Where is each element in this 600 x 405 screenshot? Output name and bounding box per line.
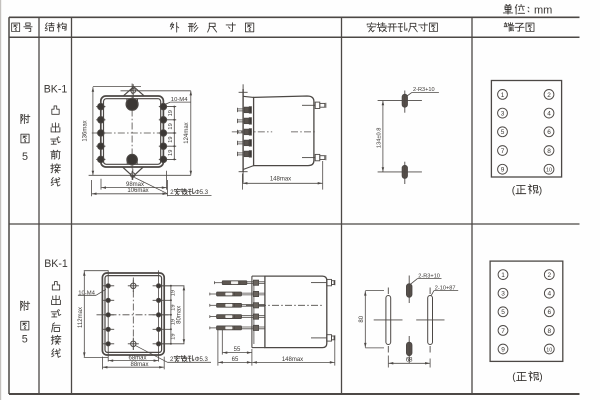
svg-text:134±0.8: 134±0.8	[376, 128, 382, 149]
svg-text:2: 2	[547, 92, 551, 99]
svg-text:19: 19	[168, 123, 174, 129]
svg-text:10: 10	[546, 347, 552, 353]
svg-text:55: 55	[234, 347, 241, 353]
svg-text:5: 5	[501, 129, 505, 136]
svg-text:2-R3+10: 2-R3+10	[413, 87, 435, 93]
svg-text:80: 80	[359, 315, 365, 322]
svg-text:148max: 148max	[270, 177, 291, 183]
svg-text:19: 19	[168, 110, 174, 116]
svg-text:106max: 106max	[127, 188, 148, 194]
svg-text:(: (	[512, 372, 516, 383]
svg-text:4: 4	[547, 111, 551, 118]
svg-text:BK-1: BK-1	[44, 84, 68, 96]
svg-text:): )	[539, 185, 542, 196]
svg-text:2-10+87: 2-10+87	[435, 286, 456, 292]
svg-text:Φ5.3: Φ5.3	[195, 190, 209, 196]
svg-text:124max: 124max	[184, 122, 190, 143]
svg-text:): )	[539, 372, 542, 383]
svg-text:10: 10	[546, 168, 552, 174]
svg-text:mm: mm	[534, 4, 552, 16]
svg-text:88max: 88max	[130, 362, 148, 368]
svg-text:19: 19	[168, 136, 174, 142]
svg-text:BK-1: BK-1	[44, 258, 68, 270]
svg-text:9: 9	[501, 346, 505, 353]
svg-text:1: 1	[501, 92, 505, 99]
svg-text:5: 5	[22, 334, 28, 346]
svg-text:2: 2	[547, 272, 551, 279]
svg-text:10-M4: 10-M4	[171, 97, 188, 103]
svg-text:3: 3	[501, 291, 505, 298]
svg-text:65: 65	[232, 357, 239, 363]
svg-text:2-R3+10: 2-R3+10	[418, 274, 440, 280]
svg-text:1: 1	[501, 272, 505, 279]
svg-text:5: 5	[501, 309, 505, 316]
svg-text:7: 7	[501, 328, 505, 335]
svg-text:148max: 148max	[282, 357, 303, 363]
svg-text:7: 7	[501, 148, 505, 155]
svg-text:98max: 98max	[126, 182, 144, 188]
svg-text:(: (	[512, 185, 516, 196]
svg-text:68max: 68max	[128, 355, 146, 361]
svg-text:8: 8	[547, 328, 551, 335]
svg-text:3: 3	[501, 111, 505, 118]
svg-text:Φ5.3: Φ5.3	[195, 357, 209, 363]
svg-text:68: 68	[406, 358, 413, 364]
svg-text:5: 5	[22, 151, 28, 163]
svg-text:19: 19	[170, 290, 176, 296]
svg-text:80max: 80max	[176, 306, 182, 324]
svg-text:6: 6	[547, 309, 551, 316]
svg-text:9: 9	[501, 167, 505, 174]
svg-text:4: 4	[547, 291, 551, 298]
svg-text:8: 8	[547, 148, 551, 155]
svg-text:19: 19	[170, 333, 176, 339]
svg-text:19: 19	[168, 150, 174, 156]
svg-text:112max: 112max	[78, 307, 84, 328]
svg-text:136max: 136max	[82, 120, 88, 141]
svg-text:6: 6	[547, 129, 551, 136]
